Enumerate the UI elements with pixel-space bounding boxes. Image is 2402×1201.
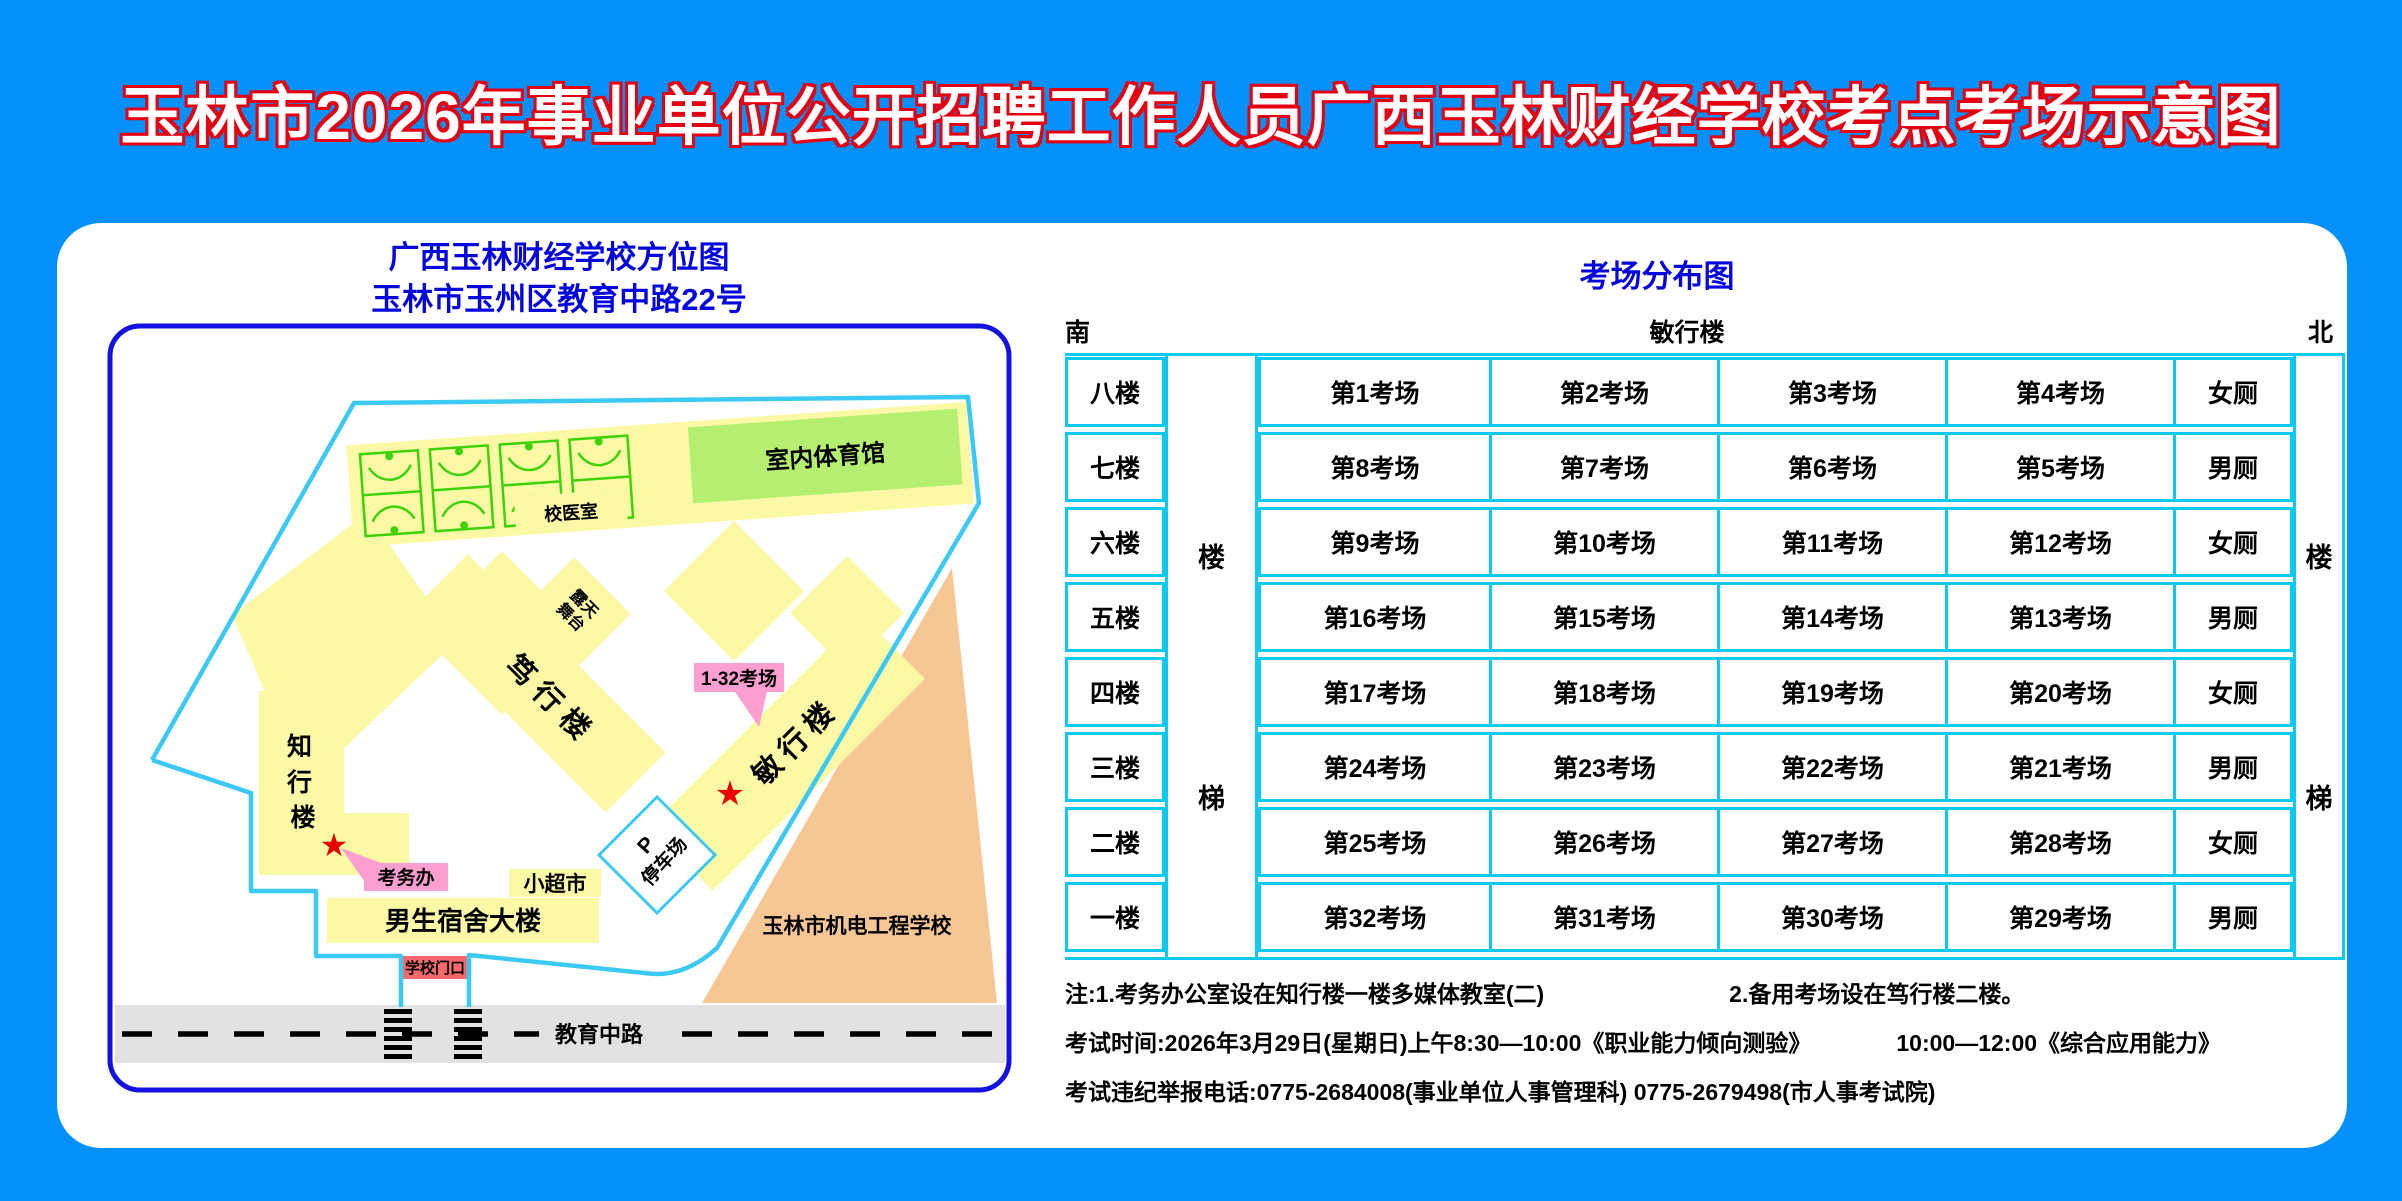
map-header: 广西玉林财经学校方位图 玉林市玉州区教育中路22号: [209, 237, 909, 321]
exam-room-cell: 第26考场: [1489, 810, 1717, 874]
exam-room-cell: 第9考场: [1261, 510, 1489, 574]
floor-row: 第16考场第15考场第14考场第13考场男厕: [1258, 582, 2293, 652]
floor-row: 第8考场第7考场第6考场第5考场男厕: [1258, 432, 2293, 502]
exam-room-cell: 第1考场: [1261, 360, 1489, 424]
exam-rooms-callout-label: 1-32考场: [701, 668, 777, 690]
exam-room-cell: 第8考场: [1261, 435, 1489, 499]
exam-room-cell: 第4考场: [1945, 360, 2173, 424]
wc-cell: 女厕: [2173, 810, 2290, 874]
map-header-line2: 玉林市玉州区教育中路22号: [209, 279, 909, 321]
zhixing-char: 楼: [290, 804, 315, 832]
table-building-label: 敏行楼: [1649, 313, 1724, 349]
exam-room-cell: 第28考场: [1945, 810, 2173, 874]
exam-room-cell: 第17考场: [1261, 660, 1489, 724]
exam-room-cell: 第5考场: [1945, 435, 2173, 499]
exam-room-cell: 第14考场: [1717, 585, 1945, 649]
floor-column: 八楼七楼六楼五楼四楼三楼二楼一楼: [1065, 353, 1165, 960]
floor-cell: 四楼: [1065, 657, 1165, 727]
note-line-1: 注:1.考务办公室设在知行楼一楼多媒体教室(二)2.备用考场设在笃行楼二楼。: [1065, 975, 2347, 1009]
note-3: 考试违纪举报电话:0775-2684008(事业单位人事管理科) 0775-26…: [1065, 1079, 1935, 1105]
exam-room-cell: 第24考场: [1261, 735, 1489, 799]
exam-room-cell: 第11考场: [1717, 510, 1945, 574]
zhixing-char: 行: [286, 769, 312, 797]
exam-room-cell: 第6考场: [1717, 435, 1945, 499]
exam-room-cell: 第12考场: [1945, 510, 2173, 574]
floor-cell: 一楼: [1065, 882, 1165, 952]
exam-room-cell: 第15考场: [1489, 585, 1717, 649]
exam-room-cell: 第13考场: [1945, 585, 2173, 649]
wc-cell: 女厕: [2173, 360, 2290, 424]
note-line-3: 考试违纪举报电话:0775-2684008(事业单位人事管理科) 0775-26…: [1065, 1073, 2347, 1107]
note-line-2: 考试时间:2026年3月29日(星期日)上午8:30—10:00《职业能力倾向测…: [1065, 1024, 2347, 1058]
content-panel: 广西玉林财经学校方位图 玉林市玉州区教育中路22号: [57, 223, 2347, 1148]
wc-cell: 女厕: [2173, 510, 2290, 574]
floor-cell: 三楼: [1065, 732, 1165, 802]
floor-row: 第9考场第10考场第11考场第12考场女厕: [1258, 507, 2293, 577]
wc-cell: 男厕: [2173, 735, 2290, 799]
dorm-label: 男生宿舍大楼: [385, 906, 541, 936]
exam-room-cell: 第2考场: [1489, 360, 1717, 424]
note-1b: 2.备用考场设在笃行楼二楼。: [1729, 981, 2024, 1007]
minxing-star-icon: ★: [715, 775, 745, 813]
exam-room-cell: 第25考场: [1261, 810, 1489, 874]
floor-cell: 七楼: [1065, 432, 1165, 502]
notes: 注:1.考务办公室设在知行楼一楼多媒体教室(二)2.备用考场设在笃行楼二楼。 考…: [1065, 975, 2347, 1122]
wc-cell: 男厕: [2173, 435, 2290, 499]
exam-room-cell: 第18考场: [1489, 660, 1717, 724]
clinic-label: 校医室: [543, 500, 598, 525]
exam-room-cell: 第23考场: [1489, 735, 1717, 799]
direction-south-label: 南: [1065, 313, 1090, 349]
stair-column-right: 楼 梯: [2293, 353, 2345, 960]
stair-label-bottom: 梯: [2296, 777, 2342, 816]
distribution-section: 考场分布图 南 敏行楼 北 八楼七楼六楼五楼四楼三楼二楼一楼 楼 梯 第1考场第…: [1062, 223, 2347, 1148]
road-label: 教育中路: [555, 1022, 644, 1047]
zhixing-char: 知: [287, 733, 312, 761]
campus-map: 玉林市机电工程学校 教育中路 室内体育馆 校医室: [107, 323, 1012, 1093]
exam-room-cell: 第3考场: [1717, 360, 1945, 424]
stair-label-top: 楼: [2296, 536, 2342, 575]
floor-row: 第1考场第2考场第3考场第4考场女厕: [1258, 357, 2293, 427]
supermarket-label: 小超市: [524, 872, 587, 896]
wc-cell: 女厕: [2173, 660, 2290, 724]
exam-room-cell: 第20考场: [1945, 660, 2173, 724]
map-header-line1: 广西玉林财经学校方位图: [209, 237, 909, 279]
other-school-label: 玉林市机电工程学校: [763, 914, 953, 938]
floor-row: 第32考场第31考场第30考场第29考场男厕: [1258, 882, 2293, 952]
floor-row: 第25考场第26考场第27考场第28考场女厕: [1258, 807, 2293, 877]
exam-room-cell: 第10考场: [1489, 510, 1717, 574]
floor-row: 第24考场第23考场第22考场第21考场男厕: [1258, 732, 2293, 802]
floor-cell: 六楼: [1065, 507, 1165, 577]
stair-label-top: 楼: [1168, 536, 1255, 575]
note-1a: 注:1.考务办公室设在知行楼一楼多媒体教室(二): [1065, 981, 1544, 1007]
page-title: 玉林市2026年事业单位公开招聘工作人员广西玉林财经学校考点考场示意图: [0, 52, 2402, 172]
exam-room-cell: 第31考场: [1489, 885, 1717, 949]
exam-room-cell: 第29考场: [1945, 885, 2173, 949]
note-2a: 考试时间:2026年3月29日(星期日)上午8:30—10:00《职业能力倾向测…: [1065, 1030, 1811, 1056]
floor-cell: 八楼: [1065, 357, 1165, 427]
floor-cell: 五楼: [1065, 582, 1165, 652]
zhixing-label: 知 行 楼: [286, 733, 319, 832]
exam-room-cell: 第7考场: [1489, 435, 1717, 499]
wc-cell: 男厕: [2173, 885, 2290, 949]
exam-room-cell: 第32考场: [1261, 885, 1489, 949]
distribution-table: 八楼七楼六楼五楼四楼三楼二楼一楼 楼 梯 第1考场第2考场第3考场第4考场女厕第…: [1065, 353, 2345, 960]
stair-label-bottom: 梯: [1168, 777, 1255, 816]
exam-room-cell: 第19考场: [1717, 660, 1945, 724]
exam-room-cell: 第21考场: [1945, 735, 2173, 799]
distribution-title: 考场分布图: [1580, 251, 1735, 296]
wc-cell: 男厕: [2173, 585, 2290, 649]
direction-north-label: 北: [2308, 313, 2333, 349]
exam-office-callout-label: 考务办: [377, 866, 434, 889]
floor-row: 第17考场第18考场第19考场第20考场女厕: [1258, 657, 2293, 727]
note-2b: 10:00—12:00《综合应用能力》: [1896, 1030, 2221, 1056]
exam-room-cell: 第22考场: [1717, 735, 1945, 799]
stair-column-left: 楼 梯: [1165, 353, 1258, 960]
exam-room-cell: 第16考场: [1261, 585, 1489, 649]
gate-label: 学校门口: [405, 959, 465, 977]
exam-room-cell: 第30考场: [1717, 885, 1945, 949]
floor-cell: 二楼: [1065, 807, 1165, 877]
exam-office-star-icon: ★: [320, 827, 349, 863]
rooms-grid: 第1考场第2考场第3考场第4考场女厕第8考场第7考场第6考场第5考场男厕第9考场…: [1258, 353, 2293, 960]
exam-room-cell: 第27考场: [1717, 810, 1945, 874]
